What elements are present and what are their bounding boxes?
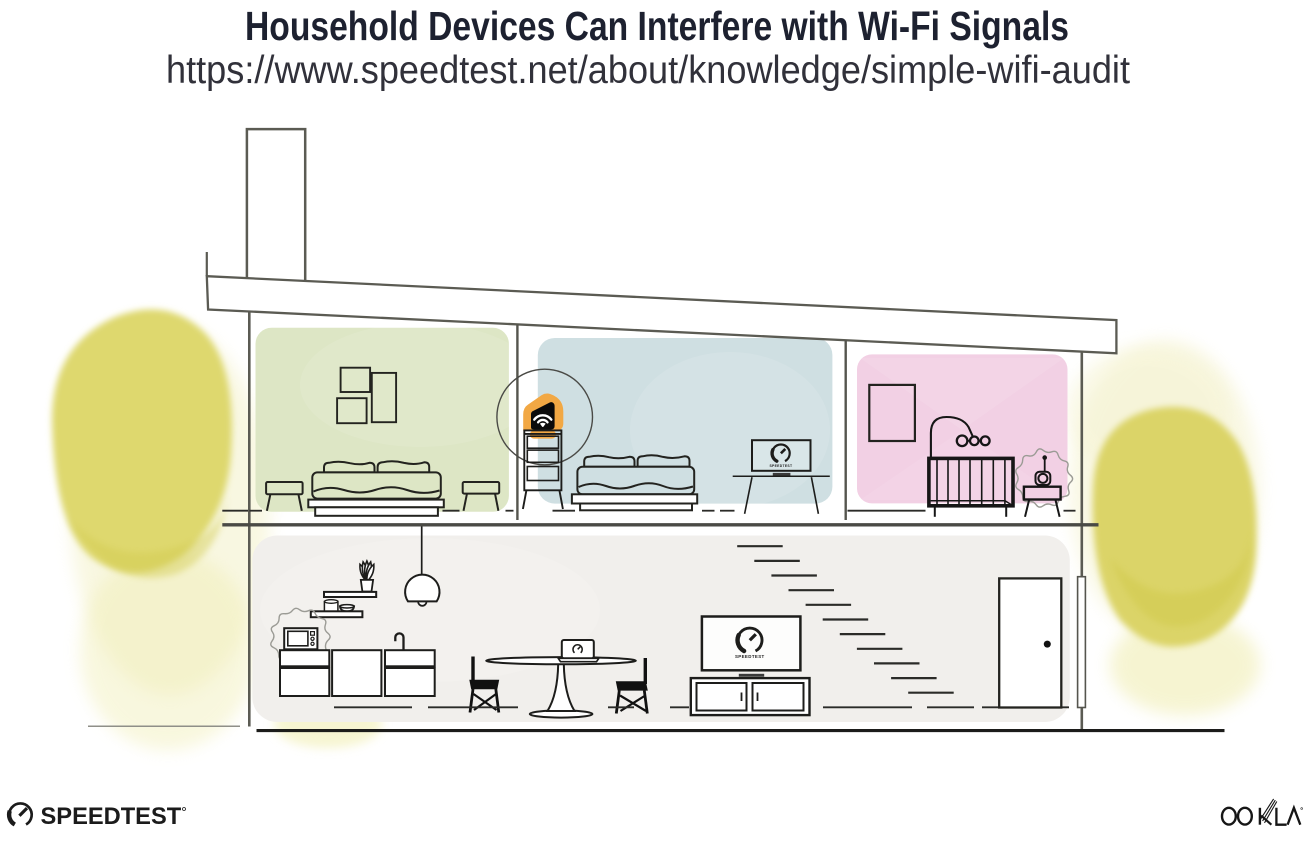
svg-text:Household Devices Can Interfer: Household Devices Can Interfere with Wi-…	[245, 3, 1069, 49]
svg-text:SPEEDTEST: SPEEDTEST	[735, 654, 765, 659]
svg-text:SPEEDTEST: SPEEDTEST	[41, 803, 182, 830]
svg-text:https://www.speedtest.net/abou: https://www.speedtest.net/about/knowledg…	[166, 49, 1130, 92]
svg-text:SPEEDTEST: SPEEDTEST	[769, 464, 792, 468]
